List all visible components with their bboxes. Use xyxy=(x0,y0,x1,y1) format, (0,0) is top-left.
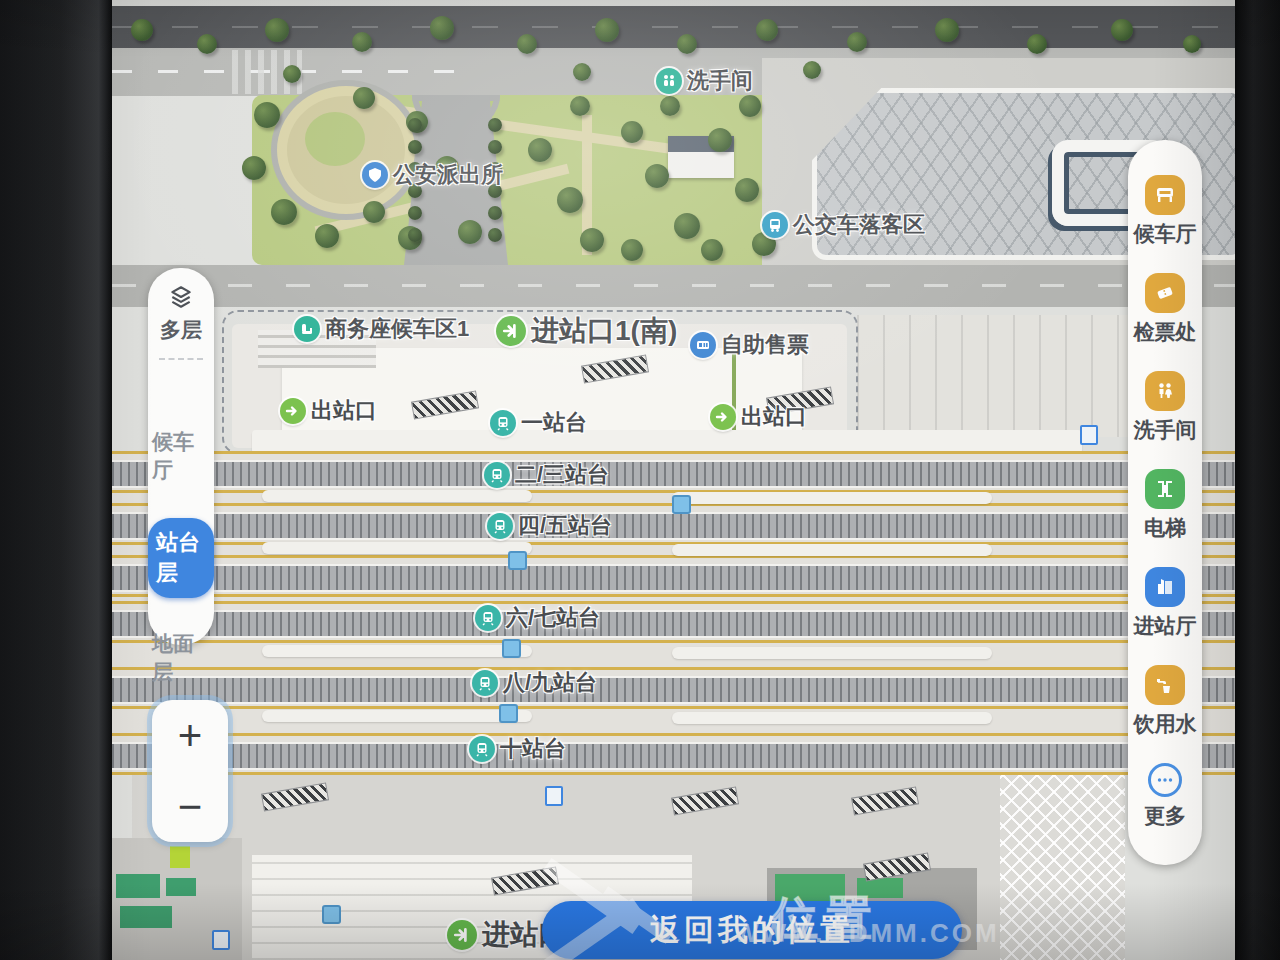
entrance-arrow-icon xyxy=(496,316,526,346)
facility-waiting-hall[interactable]: 候车厅 xyxy=(1134,175,1197,248)
poi-entrance-1-south[interactable]: 进站口1(南) xyxy=(496,312,677,350)
tree xyxy=(197,34,217,54)
poi-exit-right[interactable]: 出站口 xyxy=(710,402,807,432)
platform-edge-line xyxy=(112,601,1235,604)
tree xyxy=(660,96,680,116)
platform-edge-line xyxy=(112,733,1235,736)
tree xyxy=(271,199,297,225)
poi-platform-4-5[interactable]: 四/五站台 xyxy=(487,511,612,541)
facility-elevator[interactable]: 电梯 xyxy=(1144,469,1186,542)
tree xyxy=(517,34,537,54)
tree xyxy=(756,19,778,41)
tree xyxy=(242,156,266,180)
tree xyxy=(352,32,372,52)
escalator-marker xyxy=(499,704,518,723)
palm-tree xyxy=(408,140,422,154)
info-marker xyxy=(545,786,563,806)
train-icon xyxy=(490,410,516,436)
divider xyxy=(159,358,203,360)
tree xyxy=(265,18,289,42)
tree xyxy=(847,32,867,52)
track-band xyxy=(112,742,1235,770)
palm-tree xyxy=(408,228,422,242)
train-icon xyxy=(475,605,501,631)
platform-canopy xyxy=(672,544,992,556)
tree xyxy=(557,187,583,213)
tree xyxy=(935,18,959,42)
ticket-machine-icon xyxy=(690,332,716,358)
tree xyxy=(315,224,339,248)
escalator-marker xyxy=(672,495,691,514)
multi-layer-label: 多层 xyxy=(160,316,202,344)
tree xyxy=(254,102,280,128)
seat-icon xyxy=(294,316,320,342)
poi-bus-dropoff[interactable]: 公交车落客区 xyxy=(762,210,925,240)
escalator-marker xyxy=(508,551,527,570)
floor-option-platform-level-selected[interactable]: 站台层 xyxy=(148,518,214,598)
platform-canopy xyxy=(262,710,532,722)
facility-panel: 候车厅 检票处 洗手间 电梯 进站厅 饮用水 更多 xyxy=(1128,140,1202,865)
tree xyxy=(595,18,619,42)
multi-layer-toggle[interactable]: 多层 xyxy=(160,284,202,344)
poi-platform-2-3[interactable]: 二/三站台 xyxy=(484,460,609,490)
tree xyxy=(677,34,697,54)
elevator-icon xyxy=(1145,469,1185,509)
more-icon xyxy=(1148,763,1182,797)
poi-platform-8-9[interactable]: 八/九站台 xyxy=(472,668,597,698)
tree xyxy=(645,164,669,188)
platform-canopy xyxy=(262,542,532,554)
tree xyxy=(739,95,761,117)
poi-business-waiting-area[interactable]: 商务座候车区1 xyxy=(294,314,469,344)
palm-tree xyxy=(488,140,502,154)
platform-canopy xyxy=(262,490,532,502)
restroom-icon xyxy=(656,68,682,94)
screen-bezel-right xyxy=(1235,0,1280,960)
train-icon xyxy=(469,736,495,762)
poi-exit-left[interactable]: 出站口 xyxy=(280,396,377,426)
facility-restroom[interactable]: 洗手间 xyxy=(1134,371,1197,444)
entrance-arrow-icon xyxy=(447,920,477,950)
platform-canopy xyxy=(672,492,992,504)
platform-edge-line xyxy=(112,640,1235,643)
waiting-hall-icon xyxy=(1145,175,1185,215)
palm-tree xyxy=(488,118,502,132)
exit-arrow-icon xyxy=(280,398,306,424)
tree xyxy=(1027,34,1047,54)
track-band xyxy=(112,610,1235,638)
station-front-road xyxy=(112,265,1235,307)
floor-option-ground-level[interactable]: 地面层 xyxy=(148,624,214,692)
tree xyxy=(430,16,454,40)
tree xyxy=(1111,19,1133,41)
bus-icon xyxy=(762,212,788,238)
tree xyxy=(580,228,604,252)
tree xyxy=(363,201,385,223)
tree xyxy=(528,138,552,162)
escalator-marker xyxy=(502,639,521,658)
platform-canopy xyxy=(262,645,532,657)
layers-icon xyxy=(168,284,194,314)
track-band xyxy=(112,564,1235,592)
escalator-marker xyxy=(322,905,341,924)
info-marker xyxy=(1080,425,1098,445)
restroom-icon xyxy=(1145,371,1185,411)
platform-edge-line xyxy=(112,451,1235,454)
poi-self-service-ticketing[interactable]: 自助售票 xyxy=(690,330,809,360)
poi-platform-6-7[interactable]: 六/七站台 xyxy=(475,603,600,633)
poi-platform-1[interactable]: 一站台 xyxy=(490,408,587,438)
roundabout xyxy=(277,86,415,214)
tree xyxy=(353,87,375,109)
drinking-water-icon xyxy=(1145,665,1185,705)
track-band xyxy=(112,460,1235,488)
platform-edge-line xyxy=(112,706,1235,709)
platform-canopy xyxy=(672,712,992,724)
tree xyxy=(621,121,643,143)
tree xyxy=(803,61,821,79)
poi-platform-10[interactable]: 十站台 xyxy=(469,734,566,764)
tree xyxy=(621,239,643,261)
tree xyxy=(701,239,723,261)
palm-tree xyxy=(488,206,502,220)
floor-selector-panel: 多层 候车厅 站台层 地面层 xyxy=(148,268,214,645)
facility-ticket-check[interactable]: 检票处 xyxy=(1134,273,1197,346)
info-marker xyxy=(212,930,230,950)
zoom-control: + − xyxy=(152,700,228,842)
track-band xyxy=(112,512,1235,540)
train-icon xyxy=(472,670,498,696)
tree xyxy=(283,65,301,83)
train-icon xyxy=(484,462,510,488)
platform-edge-line xyxy=(112,667,1235,670)
track-band xyxy=(112,676,1235,704)
tree xyxy=(1183,35,1201,53)
tree xyxy=(131,19,153,41)
tree xyxy=(458,220,482,244)
platform-canopy xyxy=(672,647,992,659)
tree xyxy=(570,96,590,116)
platform-edge-line xyxy=(112,594,1235,597)
train-icon xyxy=(487,513,513,539)
station-map-canvas[interactable]: 洗手间 公安派出所 公交车落客区 商务座候车区1 进站口1(南) 自助售票 出站… xyxy=(112,0,1235,960)
palm-tree xyxy=(408,206,422,220)
police-icon xyxy=(362,162,388,188)
facility-entrance-hall[interactable]: 进站厅 xyxy=(1134,567,1197,640)
facility-more[interactable]: 更多 xyxy=(1144,763,1186,830)
tree xyxy=(674,213,700,239)
entrance-hall-icon xyxy=(1145,567,1185,607)
platform-edge-line xyxy=(112,555,1235,558)
exit-arrow-icon xyxy=(710,404,736,430)
tree xyxy=(708,128,732,152)
facility-drinking-water[interactable]: 饮用水 xyxy=(1134,665,1197,738)
ticket-check-icon xyxy=(1145,273,1185,313)
screen-bezel-left xyxy=(0,0,112,960)
tree xyxy=(735,178,759,202)
palm-tree xyxy=(408,118,422,132)
return-to-my-location-button[interactable]: 返回我的位置 xyxy=(542,901,962,959)
poi-restroom[interactable]: 洗手间 xyxy=(656,66,753,96)
zoom-out-button[interactable]: − xyxy=(178,786,203,828)
tree xyxy=(573,63,591,81)
lattice-roof xyxy=(1000,775,1125,960)
palm-tree xyxy=(488,228,502,242)
floor-option-waiting-hall[interactable]: 候车厅 xyxy=(148,422,214,490)
zoom-in-button[interactable]: + xyxy=(178,715,203,757)
poi-police-station[interactable]: 公安派出所 xyxy=(362,160,503,190)
